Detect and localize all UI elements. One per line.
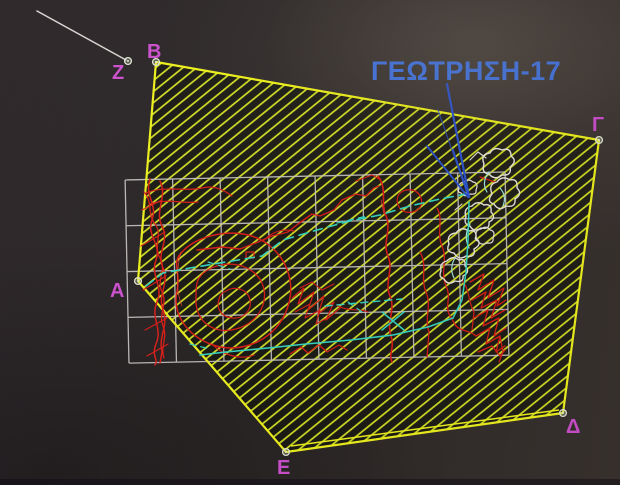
cad-canvas[interactable]: ABΓΔEZ ΓΕΩΤΡΗΣΗ-17: [0, 0, 620, 485]
vertex-label-Δ[interactable]: Δ: [566, 416, 580, 438]
vertex-marker-dot: [562, 412, 564, 414]
vertex-label-E[interactable]: E: [277, 457, 290, 479]
vertex-label-B[interactable]: B: [147, 41, 161, 63]
vertex-label-Γ[interactable]: Γ: [592, 114, 604, 136]
vertex-marker-dot: [598, 139, 600, 141]
screen-edge: [0, 479, 620, 485]
vertex-marker-dot: [137, 280, 139, 282]
parcel-hatch-region[interactable]: [138, 62, 599, 452]
vertex-marker-dot: [127, 60, 129, 62]
vertex-label-Z[interactable]: Z: [112, 62, 124, 84]
reference-leader-line: [37, 11, 126, 60]
borehole-label[interactable]: ΓΕΩΤΡΗΣΗ-17: [371, 56, 561, 86]
vertex-marker-dot: [285, 451, 287, 453]
vertex-label-A[interactable]: A: [110, 280, 124, 302]
cad-viewport: ABΓΔEZ ΓΕΩΤΡΗΣΗ-17: [0, 0, 620, 485]
